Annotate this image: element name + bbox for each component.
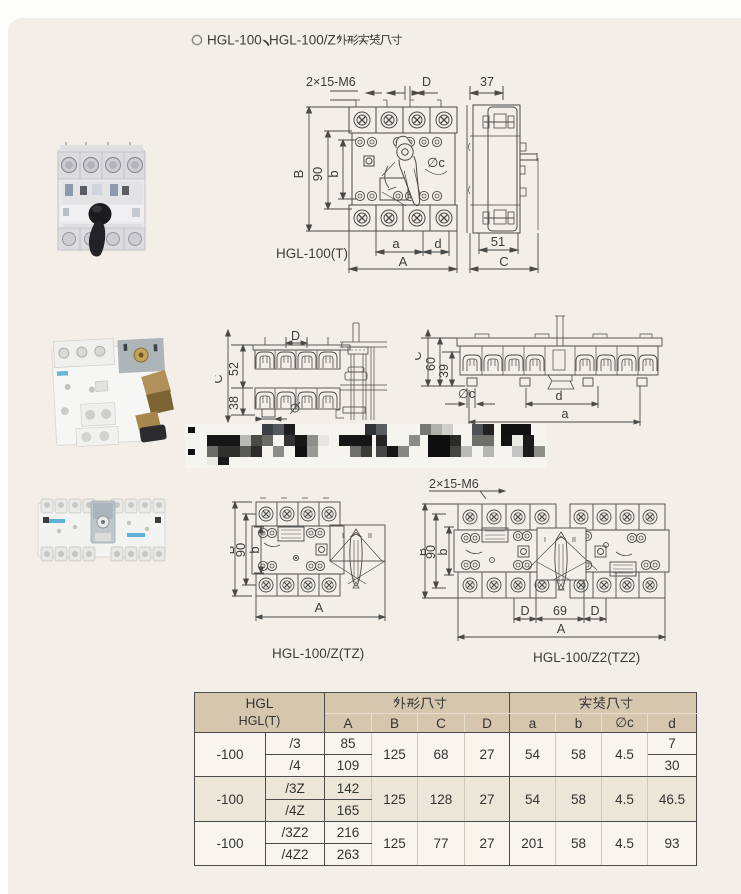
svg-text:C: C [499, 254, 508, 269]
svg-text:∅c: ∅c [427, 155, 445, 170]
svg-text:b: b [247, 546, 262, 553]
svg-text:C: C [415, 351, 424, 360]
svg-text:II: II [572, 537, 576, 544]
svg-text:b: b [436, 548, 450, 555]
svg-text:38: 38 [227, 396, 241, 410]
svg-text:60: 60 [424, 357, 438, 371]
svg-text:I: I [544, 537, 546, 544]
svg-text:d: d [556, 389, 563, 403]
svg-text:I: I [342, 533, 344, 540]
svg-text:D: D [422, 75, 431, 89]
svg-text:b: b [326, 170, 341, 177]
svg-text:39: 39 [437, 364, 451, 378]
svg-text:d: d [434, 236, 441, 251]
svg-text:69: 69 [553, 604, 567, 618]
svg-text:52: 52 [227, 362, 241, 376]
svg-text:a: a [562, 407, 569, 421]
svg-text:D: D [520, 604, 529, 618]
svg-text:II: II [368, 533, 372, 540]
svg-text:A: A [557, 622, 566, 636]
svg-text:D: D [590, 604, 599, 618]
svg-text:a: a [392, 236, 400, 251]
svg-text:A: A [315, 600, 324, 615]
svg-text:HGL-100: HGL-100 [207, 33, 262, 48]
svg-text:51: 51 [491, 234, 505, 249]
svg-text:90: 90 [310, 167, 325, 181]
svg-text:2×15-M6: 2×15-M6 [306, 75, 356, 89]
svg-text:HGL-100/Z: HGL-100/Z [269, 33, 336, 48]
svg-text:B: B [291, 170, 306, 179]
svg-text:2×15-M6: 2×15-M6 [429, 477, 479, 491]
svg-text:37: 37 [480, 75, 494, 89]
svg-text:A: A [399, 254, 408, 269]
svg-text:C: C [215, 374, 225, 383]
svg-text:90: 90 [233, 543, 248, 557]
